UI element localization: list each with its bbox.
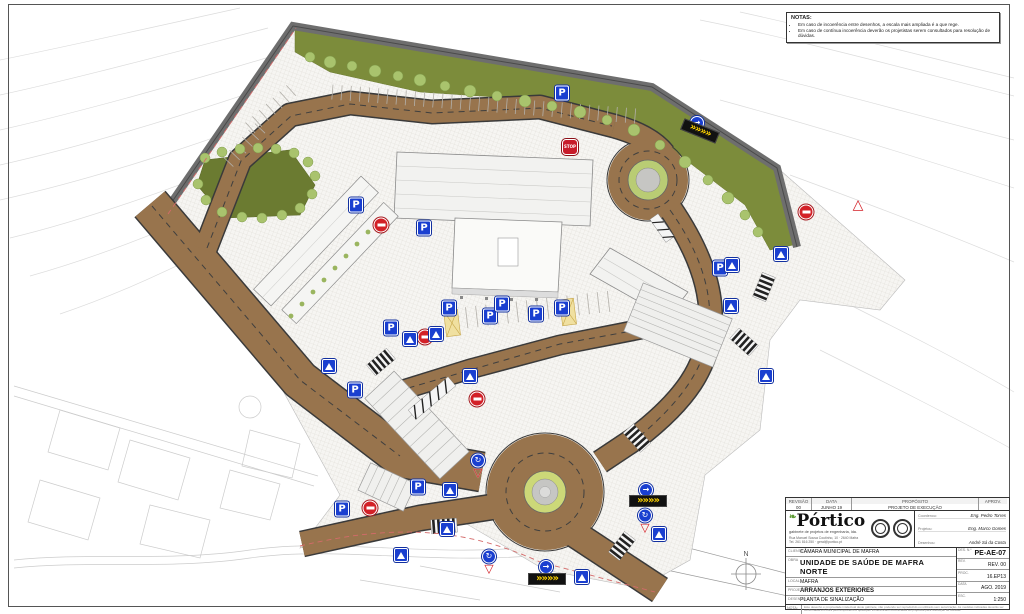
north-label: N bbox=[743, 551, 748, 558]
revision-number: REV. 00 bbox=[988, 562, 1006, 568]
footnote-text: Este desenho é propriedade intelectual d… bbox=[802, 605, 1009, 614]
field-label: OBRA bbox=[788, 558, 798, 562]
notes-box: NOTAS: Em caso de incoerência entre dese… bbox=[786, 12, 1000, 43]
drawing-title: PLANTA DE SINALIZAÇÃO bbox=[800, 597, 864, 603]
meta-label: DES. N.º bbox=[958, 548, 972, 552]
project-team: Coordenou:Eng. Pedro Torres Projetou:Eng… bbox=[915, 511, 1009, 547]
drawing-date: AGO. 2019 bbox=[981, 585, 1006, 591]
revision-cell: 00 bbox=[786, 504, 812, 510]
client-name: CÂMARA MUNICIPAL DE MAFRA bbox=[800, 549, 879, 555]
north-arrow: N bbox=[731, 548, 761, 590]
field-label: DESENHO bbox=[788, 597, 806, 601]
certification-stamps bbox=[871, 519, 912, 538]
meta-label: ESC. bbox=[958, 594, 966, 598]
drawing-sheet: { "sheet": { "north_label": "N", "notes_… bbox=[0, 0, 1024, 614]
team-label: Desenhou: bbox=[918, 541, 935, 545]
drawing-meta: DES. N.ºPE-AE-07 REV.REV. 00 PROC.16.EP1… bbox=[957, 548, 1009, 604]
note-item: Em caso de contínua incoerência deverão … bbox=[798, 28, 995, 38]
revision-cell: JUNHO 19 bbox=[812, 504, 852, 510]
drawing-number: PE-AE-07 bbox=[974, 550, 1006, 557]
drawing-scale: 1:250 bbox=[993, 597, 1006, 603]
team-value: Eng. Marco Gomes bbox=[968, 526, 1006, 531]
company-logo: ❧Pórtico gabinete de projetos de engenha… bbox=[786, 511, 915, 547]
note-item: Em caso de incoerência entre desenhos, a… bbox=[798, 22, 995, 27]
project-fields: CLIENTECÂMARA MUNICIPAL DE MAFRA OBRAUNI… bbox=[786, 548, 957, 604]
process-number: 16.EP13 bbox=[987, 574, 1006, 580]
team-value: Eng. Pedro Torres bbox=[971, 513, 1006, 518]
revision-table: REVISÃO DATA PROPÓSITO APROV. 00 JUNHO 1… bbox=[786, 498, 1009, 511]
meta-label: REV. bbox=[958, 559, 966, 563]
team-value: André Sá da Costa bbox=[969, 540, 1006, 545]
specialty: ARRANJOS EXTERIORES bbox=[800, 588, 874, 594]
stamp-icon bbox=[893, 519, 912, 538]
field-label: CLIENTE bbox=[788, 549, 803, 553]
project-location: MAFRA bbox=[800, 579, 818, 585]
meta-label: DATA bbox=[958, 582, 967, 586]
stamp-icon bbox=[871, 519, 890, 538]
project-title: UNIDADE DE SAÚDE DE MAFRA NORTE bbox=[800, 558, 953, 576]
leaf-icon: ❧ bbox=[789, 512, 797, 522]
field-label: PROJETO bbox=[788, 588, 805, 592]
field-label: LOCAL bbox=[788, 579, 800, 583]
team-label: Coordenou: bbox=[918, 514, 937, 518]
team-label: Projetou: bbox=[918, 527, 932, 531]
revision-cell bbox=[979, 504, 1007, 510]
title-block: REVISÃO DATA PROPÓSITO APROV. 00 JUNHO 1… bbox=[785, 497, 1010, 610]
title-block-footnote: NOTA: Este desenho é propriedade intelec… bbox=[786, 604, 1009, 614]
meta-label: PROC. bbox=[958, 571, 969, 575]
footnote-label: NOTA: bbox=[786, 605, 802, 614]
revision-cell: PROJETO DE EXECUÇÃO bbox=[852, 504, 979, 510]
notes-title: NOTAS: bbox=[791, 15, 995, 21]
